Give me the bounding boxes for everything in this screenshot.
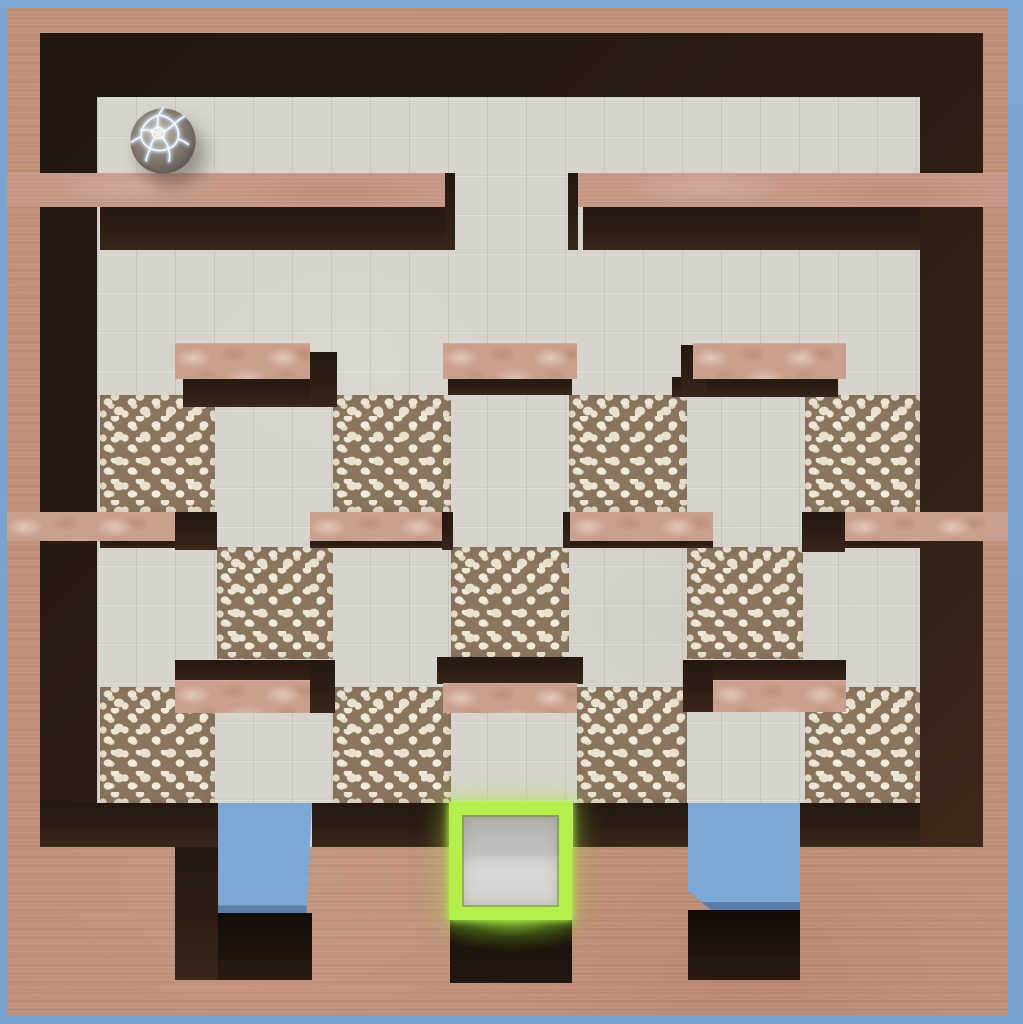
pebble-patch: [451, 547, 569, 659]
block-upper-left-top: [175, 343, 310, 379]
player-ball[interactable]: [129, 107, 197, 175]
block-upper-center-face-s: [448, 377, 572, 395]
bottom-left-block-face-e: [175, 847, 218, 980]
midwall-b-endcap: [442, 512, 453, 550]
block-lower-center-top: [443, 683, 577, 713]
block-lower-right-face-w: [683, 660, 713, 712]
block-lower-left-top: [175, 680, 310, 713]
pebble-patch: [569, 395, 687, 512]
block-upper-right-top: [693, 343, 846, 379]
midwall-a-endcap: [175, 512, 217, 550]
midwall-b-top: [310, 512, 442, 541]
pebble-patch: [333, 395, 451, 512]
block-lower-center-face-n: [437, 657, 583, 684]
bottom-block-face-n: [312, 803, 449, 847]
pebble-patch: [805, 395, 920, 512]
bottom-block-face-n: [846, 803, 920, 847]
block-lower-right-top: [713, 680, 846, 712]
wall-row1-right-endcap: [568, 173, 578, 250]
midwall-d-top: [845, 512, 1008, 541]
bottom-block-face-w: [800, 803, 846, 847]
pebble-patch: [217, 547, 333, 659]
ball-graphic: [129, 107, 197, 175]
block-upper-left-face-e: [310, 352, 337, 407]
bottom-block-face-n: [573, 803, 688, 847]
pebble-patch: [577, 687, 687, 803]
pit-opening-right: [688, 803, 800, 913]
midwall-d-endcap: [802, 512, 845, 552]
goal-glow-corridor: [450, 915, 572, 983]
bottom-block-face-n: [40, 803, 218, 847]
pit-corridor-right: [688, 910, 800, 980]
pebble-patch: [100, 395, 215, 512]
midwall-a-top: [7, 512, 175, 541]
midwall-c-top: [570, 512, 713, 541]
wall-row1-right-face: [583, 205, 920, 250]
wall-row1-right-top: [578, 173, 1008, 207]
maze-scene: [0, 0, 1023, 1024]
pebble-patch: [687, 547, 803, 659]
wall-row1-left-endcap: [445, 173, 455, 250]
wall-row1-left-top: [7, 173, 445, 207]
goal-exit: [449, 802, 572, 920]
block-lower-left-face-e: [310, 660, 335, 713]
wall-row1-left-face: [100, 205, 452, 250]
pit-corridor-left: [218, 913, 312, 980]
pit-opening-left: [218, 803, 312, 917]
midwall-c-endcap: [563, 512, 570, 548]
pebble-patch: [333, 687, 451, 803]
block-upper-center-top: [443, 343, 577, 379]
